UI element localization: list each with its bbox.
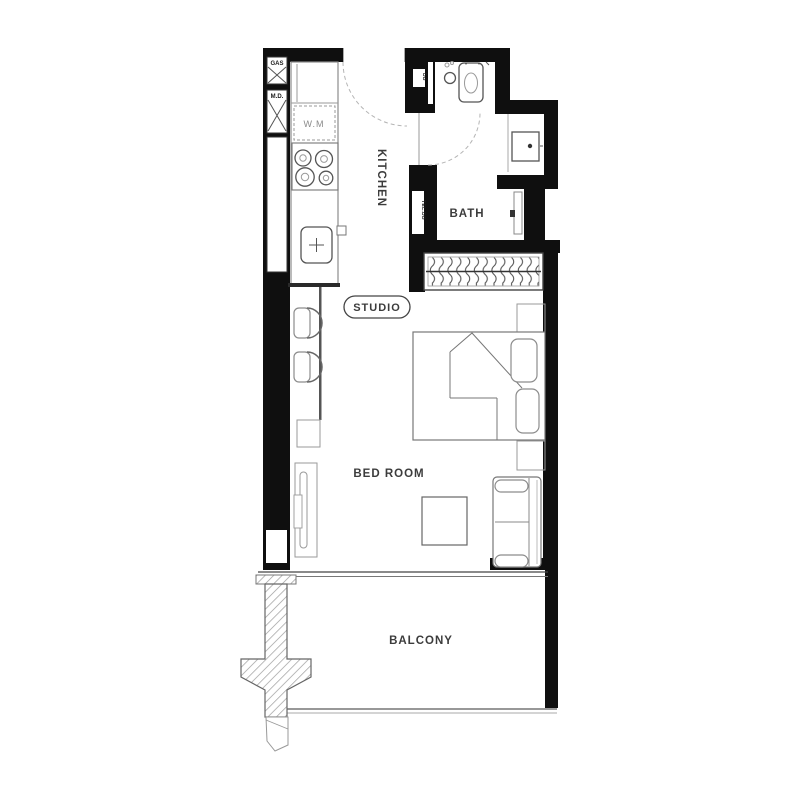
chair-back	[294, 308, 310, 338]
entry-door-swing-arc	[343, 62, 407, 126]
accessory-icon	[451, 62, 454, 65]
bath-door-swing-arc	[428, 113, 480, 165]
tv-console	[294, 463, 317, 557]
burner-icon	[296, 168, 314, 186]
bar-chair	[294, 308, 322, 338]
tv-console-shelf	[294, 495, 302, 528]
shower-handle-icon	[510, 210, 515, 217]
burner-icon	[316, 151, 333, 168]
wall-wardrobe-left	[409, 240, 425, 292]
bath-label: BATH	[449, 208, 484, 220]
md-label: M.D.	[271, 94, 284, 100]
duct-shaft	[267, 137, 287, 272]
pillow	[516, 389, 539, 433]
accessory-dot-icon	[465, 63, 467, 65]
hatched-cross-column	[241, 584, 311, 717]
wall-balcony-right	[545, 566, 558, 708]
bedroom-area: BED ROOM	[294, 304, 545, 567]
breakfast-bar-area: STUDIO	[294, 287, 410, 447]
nightstand-top	[517, 304, 545, 333]
db-label: DB	[421, 73, 427, 81]
accessory-icon	[445, 63, 449, 67]
hatched-wall-bar	[256, 575, 296, 584]
bar-chair	[294, 352, 322, 382]
bed	[413, 332, 545, 440]
accessory-dot-icon	[478, 63, 480, 65]
floor-drain-icon	[445, 73, 456, 84]
balcony-label: BALCONY	[389, 635, 453, 647]
wardrobe	[424, 253, 543, 290]
column-void	[266, 530, 287, 563]
kitchen-sink	[301, 226, 346, 263]
sofa-armrest	[495, 480, 528, 492]
chair-back	[294, 352, 310, 382]
gas-label: GAS	[270, 61, 283, 67]
burner-icon	[295, 150, 311, 166]
sofa	[493, 477, 541, 567]
shower-screen	[514, 192, 522, 234]
wall-bath-right	[524, 185, 545, 245]
wall-bath-bottom	[409, 240, 560, 253]
washbasin-drain-icon	[528, 144, 532, 148]
tel-db-label: TEL.DB	[420, 200, 426, 220]
pillow	[511, 339, 537, 382]
kitchen-label: KITCHEN	[375, 149, 387, 207]
exterior-column	[241, 575, 311, 751]
balcony-area: BALCONY	[258, 572, 557, 713]
bar-end-cabinet	[297, 420, 320, 447]
counter-end-edge	[288, 283, 340, 287]
floor-plan-canvas: GAS M.D. W.M	[0, 0, 800, 800]
washbasin-icon	[512, 132, 539, 161]
studio-label: STUDIO	[353, 302, 401, 314]
washing-machine-label: W.M	[304, 119, 325, 129]
column-break-tip	[266, 717, 288, 751]
toilet-icon	[459, 63, 483, 102]
washbasin-niche	[428, 113, 543, 172]
coffee-table	[422, 497, 467, 545]
breakfast-bar	[319, 287, 322, 420]
kitchen-area: W.M KITCHEN	[288, 62, 407, 287]
bedroom-label: BED ROOM	[353, 468, 424, 480]
nightstand-bottom	[517, 441, 545, 470]
faucet-icon	[337, 226, 346, 235]
sofa-armrest	[495, 555, 528, 567]
accessory-tick-icon	[486, 62, 489, 65]
burner-icon	[319, 171, 333, 185]
wc-wall-slot	[428, 62, 433, 104]
floor-plan-svg: GAS M.D. W.M	[0, 0, 800, 800]
